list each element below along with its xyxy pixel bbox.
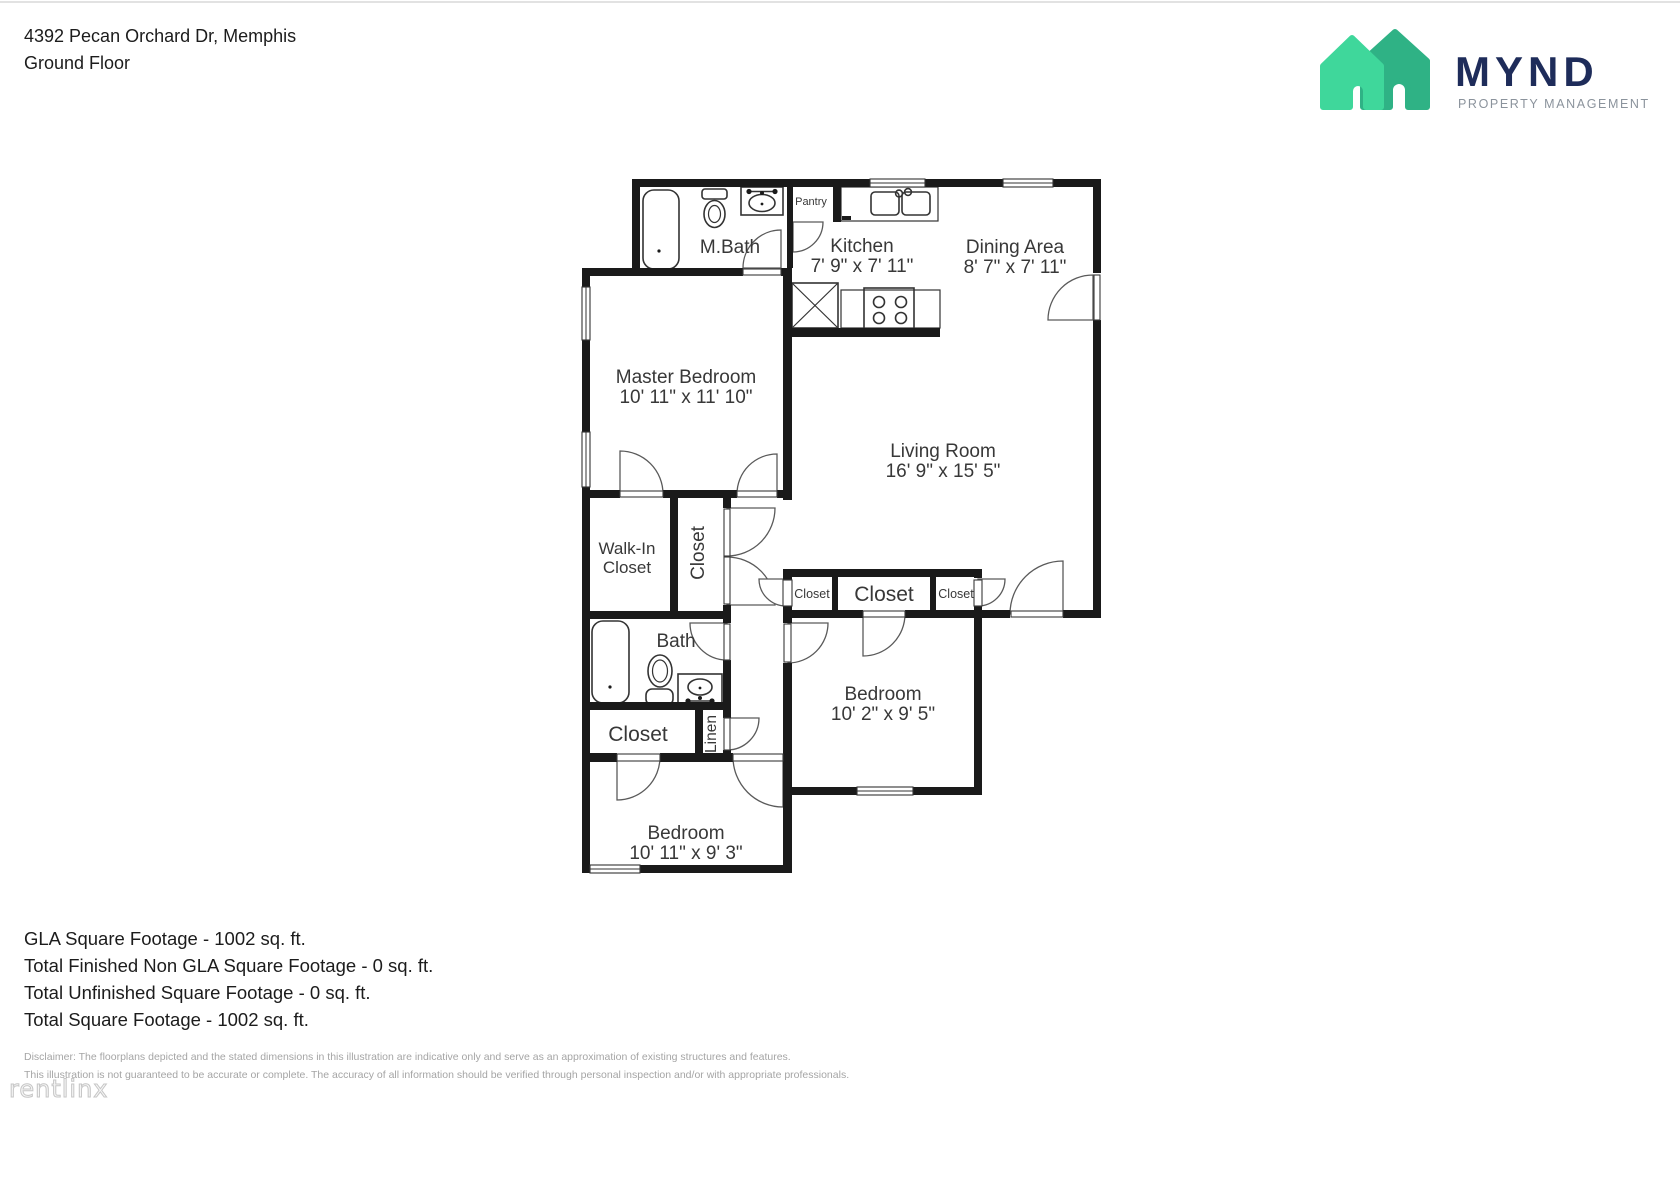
room-label-living-room: Living Room 16' 9" x 15' 5" <box>886 442 1001 482</box>
room-label-dining: Dining Area 8' 7" x 7' 11" <box>964 238 1067 278</box>
room-label-master-bedroom: Master Bedroom 10' 11" x 11' 10" <box>616 368 756 408</box>
room-label-closet-small-right: Closet <box>938 584 973 604</box>
walls <box>582 179 1101 873</box>
room-label-walk-in-closet: Walk-In Closet <box>599 539 656 577</box>
disclaimer-line1: Disclaimer: The floorplans depicted and … <box>24 1048 849 1066</box>
room-label-bedroom-right: Bedroom 10' 2" x 9' 5" <box>831 685 935 725</box>
room-label-bedroom-closet: Closet <box>608 725 668 745</box>
rentlinx-watermark: rentlinx <box>9 1075 108 1103</box>
room-label-bedroom-bottom: Bedroom 10' 11" x 9' 3" <box>629 824 742 864</box>
room-label-closet-small-left: Closet <box>794 584 829 604</box>
room-label-linen: Linen <box>702 715 722 753</box>
gla-square-footage: GLA Square Footage - 1002 sq. ft. <box>24 925 433 952</box>
room-label-closet-center: Closet <box>854 585 914 605</box>
non-gla-square-footage: Total Finished Non GLA Square Footage - … <box>24 952 433 979</box>
disclaimer-line2: This illustration is not guaranteed to b… <box>24 1066 849 1084</box>
floorplan-page: 4392 Pecan Orchard Dr, Memphis Ground Fl… <box>0 0 1680 1188</box>
square-footage-summary: GLA Square Footage - 1002 sq. ft. Total … <box>24 925 433 1033</box>
room-label-mbath: M.Bath <box>700 238 760 258</box>
room-label-bath: Bath <box>656 632 695 652</box>
unfinished-square-footage: Total Unfinished Square Footage - 0 sq. … <box>24 979 433 1006</box>
room-label-pantry: Pantry <box>795 192 827 212</box>
room-label-hall-closet: Closet <box>689 526 709 580</box>
room-label-kitchen: Kitchen 7' 9" x 7' 11" <box>811 237 914 277</box>
disclaimer: Disclaimer: The floorplans depicted and … <box>24 1048 849 1084</box>
total-square-footage: Total Square Footage - 1002 sq. ft. <box>24 1006 433 1033</box>
